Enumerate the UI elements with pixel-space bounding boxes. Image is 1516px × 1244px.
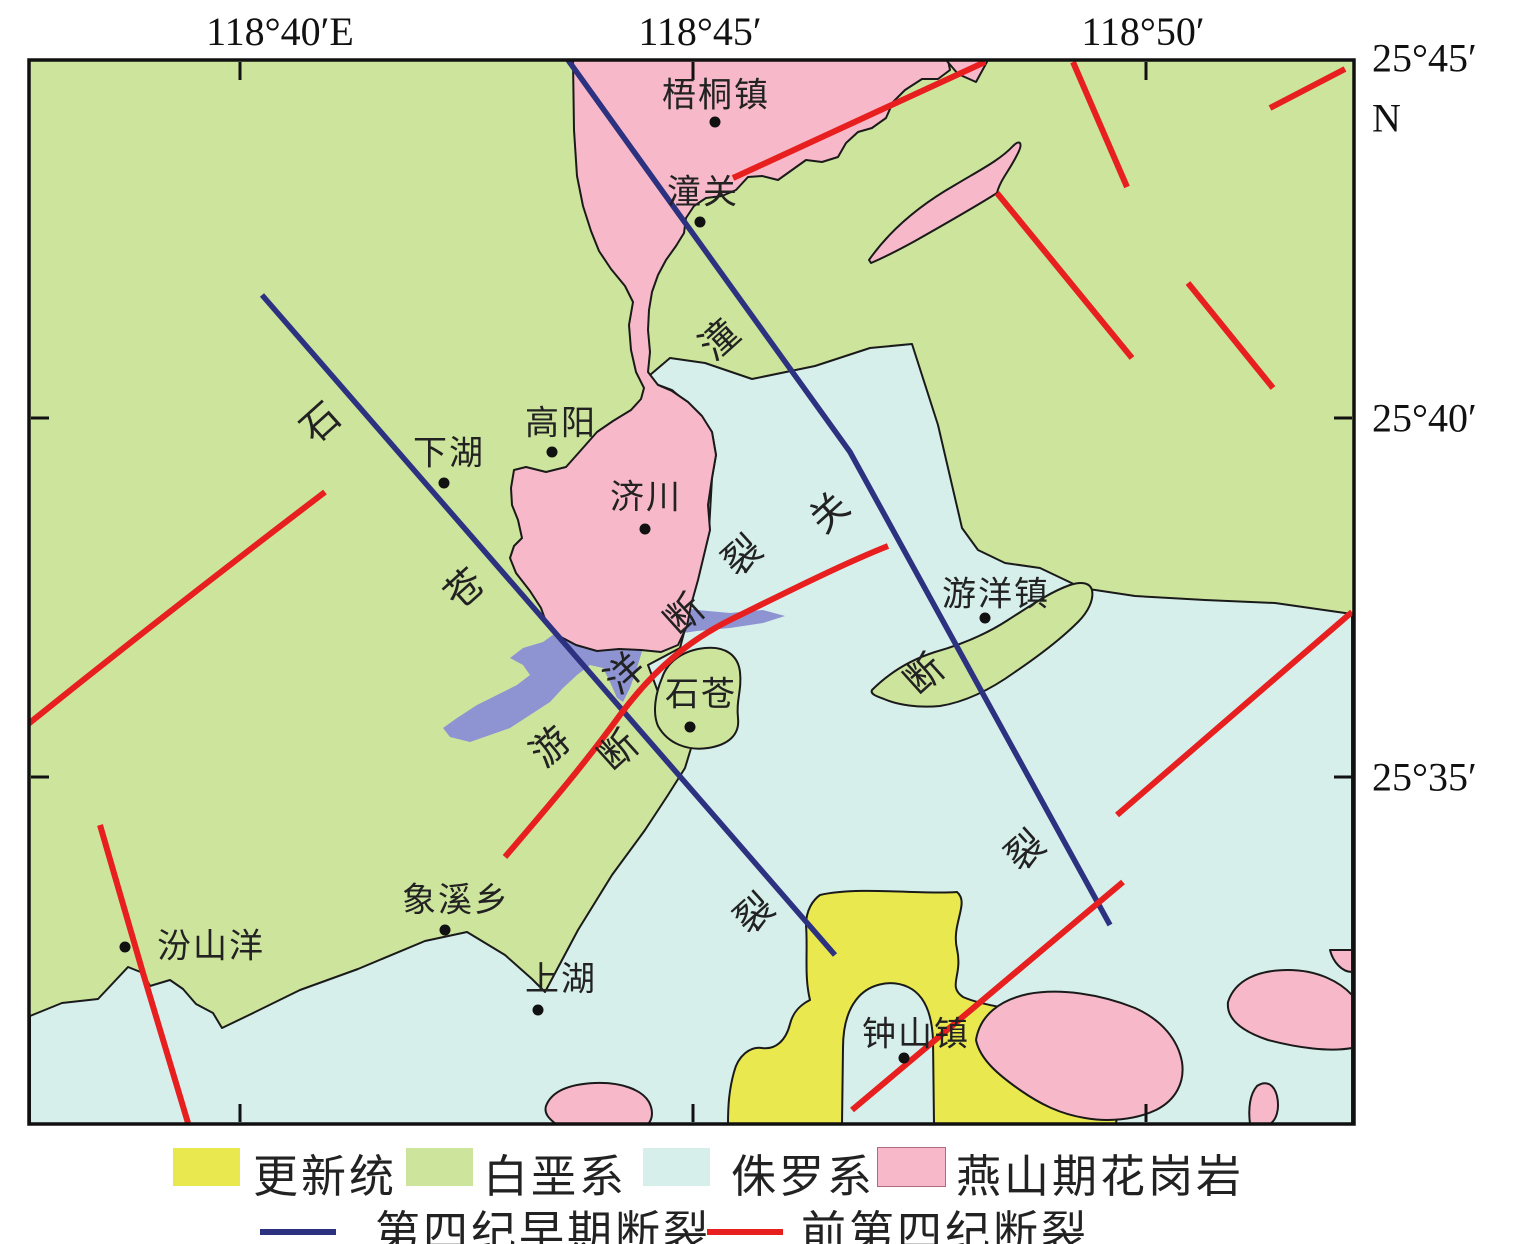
- town-dot: [440, 925, 451, 936]
- town-dot: [640, 524, 651, 535]
- town-label: 石苍: [665, 667, 737, 716]
- axis-label-latitude: 25°45′: [1372, 35, 1477, 82]
- town-dot: [685, 722, 696, 733]
- town-label: 游洋镇: [942, 567, 1050, 616]
- town-label: 钟山镇: [862, 1007, 970, 1056]
- town-dot: [899, 1053, 910, 1064]
- legend-swatch: [643, 1148, 710, 1186]
- town-label: 梧桐镇: [662, 68, 770, 117]
- region-granite-finger: [1249, 1083, 1278, 1124]
- town-dot: [120, 942, 131, 953]
- legend-swatch: [173, 1148, 240, 1186]
- axis-label-latitude: 25°40′: [1372, 395, 1477, 442]
- town-label: 潼关: [667, 165, 739, 214]
- town-dot: [980, 613, 991, 624]
- legend-label: 第四纪早期断裂: [375, 1196, 711, 1244]
- town-label: 下湖: [413, 426, 485, 475]
- town-label: 汾山洋: [157, 919, 265, 968]
- legend-line-swatch: [707, 1229, 783, 1235]
- legend-swatch: [878, 1148, 945, 1186]
- town-label: 象溪乡: [402, 873, 510, 922]
- town-dot: [695, 217, 706, 228]
- legend-line-swatch: [260, 1229, 336, 1235]
- axis-label-latitude: 25°35′: [1372, 754, 1477, 801]
- town-dot: [439, 478, 450, 489]
- town-label: 上湖: [525, 952, 597, 1001]
- legend-label: 前第四纪断裂: [801, 1196, 1089, 1244]
- town-dot: [710, 117, 721, 128]
- axis-label-latitude: N: [1372, 95, 1401, 142]
- town-label: 济川: [610, 470, 682, 519]
- legend-swatch: [406, 1148, 473, 1186]
- geologic-map-figure: 118°40′E118°45′118°50′ 25°45′N25°40′25°3…: [0, 0, 1516, 1244]
- town-label: 高阳: [525, 396, 597, 445]
- town-dot: [533, 1005, 544, 1016]
- axis-label-longitude: 118°45′: [638, 8, 761, 55]
- axis-label-longitude: 118°40′E: [206, 8, 354, 55]
- map-canvas: [0, 0, 1516, 1244]
- town-dot: [547, 447, 558, 458]
- axis-label-longitude: 118°50′: [1081, 8, 1204, 55]
